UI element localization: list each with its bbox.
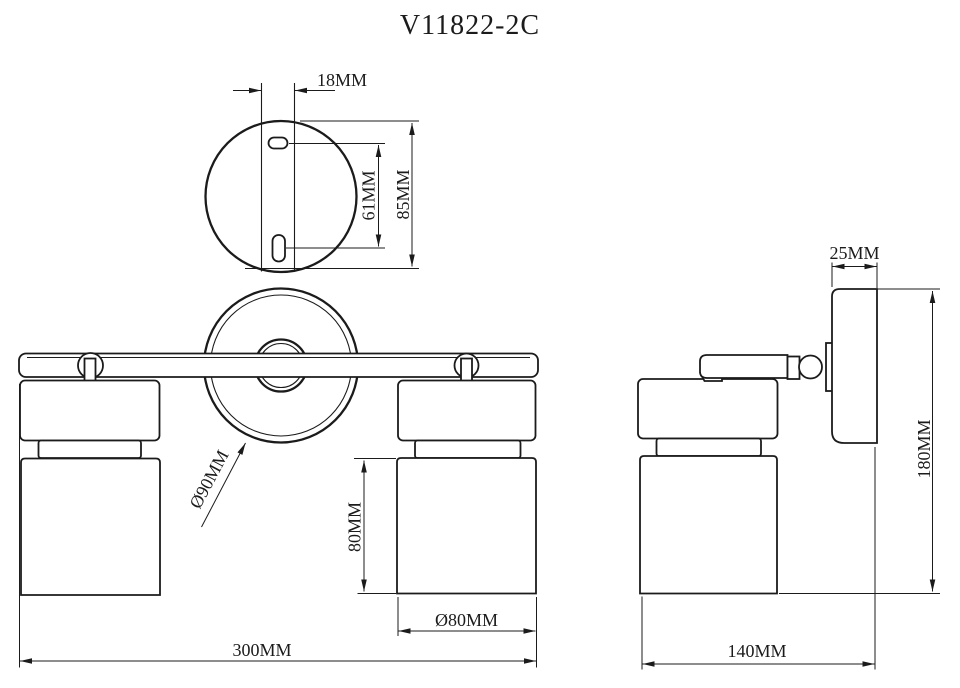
top-view: 18MM 61MM 85MM <box>206 70 420 272</box>
wall-plate-side <box>832 289 877 443</box>
dimension-18mm: 18MM <box>233 70 367 91</box>
side-arm <box>700 355 788 378</box>
drawing-title: V11822-2C <box>400 10 540 41</box>
left-lamp-shade <box>21 459 160 596</box>
dimension-25mm: 25MM <box>829 243 879 288</box>
dimension-140mm-label: 140MM <box>727 641 786 661</box>
left-knob-yoke <box>85 359 96 383</box>
dimension-180mm-label: 180MM <box>914 419 934 478</box>
ball-joint <box>799 356 822 379</box>
right-lamp-shade <box>397 458 536 594</box>
dimension-80mm-height: 80MM <box>345 459 397 594</box>
dimension-80mm-height-label: 80MM <box>345 502 365 552</box>
right-lamp-holder <box>398 381 536 441</box>
left-lamp-holder <box>20 381 160 441</box>
dimension-80mm-diameter-label: Ø80MM <box>435 610 498 630</box>
dimension-80mm-diameter: Ø80MM <box>398 597 536 636</box>
front-view: Ø90MM 80MM Ø80MM 300MM <box>19 289 538 668</box>
right-knob-yoke <box>461 359 472 383</box>
arm-ball-connector <box>788 357 800 380</box>
side-lamp-shade <box>640 456 777 594</box>
dimension-25mm-label: 25MM <box>829 243 879 263</box>
side-lamp-collar <box>657 439 762 457</box>
side-view: 25MM 180MM 140MM <box>638 243 940 670</box>
dimension-61mm-label: 61MM <box>359 170 379 220</box>
dimension-85mm-label: 85MM <box>393 169 413 219</box>
upper-mounting-slot <box>269 138 288 149</box>
left-lamp-collar <box>39 441 142 459</box>
technical-drawing-page: V11822-2C 18MM 61MM 85MM <box>0 0 960 688</box>
dimension-90mm-label: Ø90MM <box>185 447 232 512</box>
dimension-300mm-label: 300MM <box>232 640 291 660</box>
dimension-61mm: 61MM <box>286 144 385 249</box>
dimension-90mm-diameter: Ø90MM <box>185 443 245 527</box>
right-lamp-collar <box>415 441 521 459</box>
side-lamp-holder <box>638 379 778 439</box>
dimension-18mm-label: 18MM <box>317 70 367 90</box>
drawing-canvas: V11822-2C 18MM 61MM 85MM <box>0 0 960 688</box>
lower-mounting-slot <box>273 235 286 262</box>
